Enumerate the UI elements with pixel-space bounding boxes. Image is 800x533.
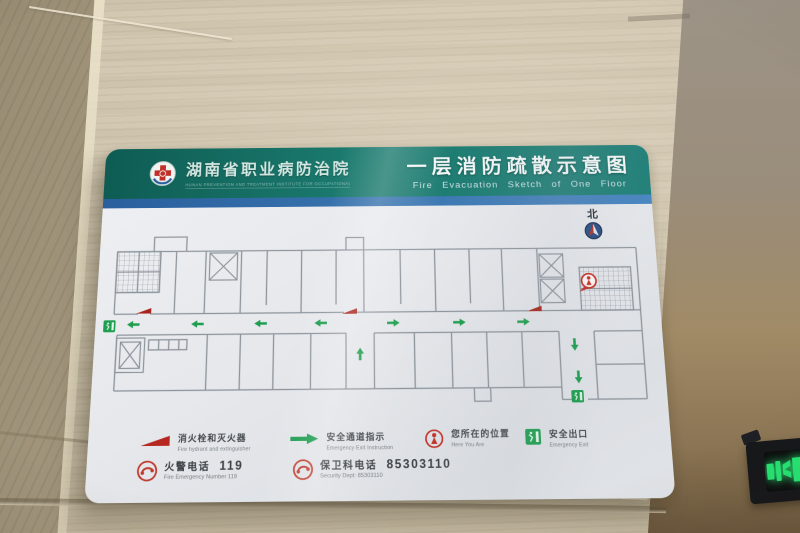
sign-scene: 湖南省职业病防治院 HUNAN PREVENTION AND TREATMENT…: [96, 138, 661, 494]
elevator-lower-left: [115, 338, 145, 373]
legend-item-exit: 安全出口 Emergency Exit: [525, 427, 589, 448]
route-arrow-icon: [290, 432, 319, 446]
phone-label-zh: 保卫科电话: [320, 457, 377, 472]
legend-label-en: Emergency Exit: [549, 442, 589, 449]
legend-label-zh: 您所在的位置: [451, 427, 510, 440]
elevator-mid: [209, 253, 237, 280]
elevators-right: [539, 254, 565, 303]
plan-walls: [109, 233, 647, 404]
legend-item-route: 安全通道指示 Emergency Exit Instruction: [290, 430, 393, 451]
hospital-logo-icon: [149, 161, 177, 187]
legend-item-here-you-are: 您所在的位置 Here You Are: [424, 427, 510, 449]
stairs-left: [115, 252, 161, 293]
north-indicator: 北: [584, 207, 603, 239]
legend-label-en: Emergency Exit Instruction: [326, 444, 393, 451]
plan-exit-left-icon: [103, 320, 116, 332]
org-name-zh: 湖南省职业病防治院: [186, 156, 351, 179]
evacuation-sign-board: 湖南省职业病防治院 HUNAN PREVENTION AND TREATMENT…: [84, 145, 675, 504]
emergency-exit-icon: [525, 429, 542, 446]
sign-body: 北 消火栓和灭火器 Fire hydrant and extinguisher: [84, 204, 675, 504]
legend-label-zh: 安全出口: [549, 427, 589, 440]
sign-title-en: Fire Evacuation Sketch of One Floor: [407, 179, 634, 191]
phone-label-en: Fire Emergency Number 119: [164, 474, 243, 481]
phone-number: 85303110: [387, 458, 452, 471]
sign-title-block: 一层消防疏散示意图 Fire Evacuation Sketch of One …: [406, 150, 633, 191]
plan-exit-bottom-icon: [571, 390, 584, 402]
org-name-block: 湖南省职业病防治院 HUNAN PREVENTION AND TREATMENT…: [185, 156, 351, 189]
telephone-icon: [136, 460, 159, 483]
floor-plan: 北: [89, 204, 669, 420]
legend-item-hydrant: 消火栓和灭火器 Fire hydrant and extinguisher: [139, 431, 251, 453]
north-label: 北: [587, 207, 599, 220]
fire-hydrant-icon: [139, 433, 171, 447]
org-name-en: HUNAN PREVENTION AND TREATMENT INSTITUTE…: [185, 181, 350, 189]
legend-label-en: Fire hydrant and extinguisher: [177, 446, 250, 453]
phone-label-en: Security Dept: 85303110: [320, 472, 452, 480]
route-arrows: [124, 317, 583, 387]
led-exit-glyph: [763, 449, 800, 492]
sign-header: 湖南省职业病防治院 HUNAN PREVENTION AND TREATMENT…: [103, 145, 651, 199]
here-you-are-icon: [424, 429, 444, 449]
sign-title-zh: 一层消防疏散示意图: [406, 150, 632, 179]
led-exit-sign: [745, 438, 800, 505]
legend-label-en: Here You Are: [451, 441, 510, 448]
phone-label-zh: 火警电话: [164, 458, 210, 473]
telephone-icon: [292, 458, 314, 481]
legend-label-zh: 消火栓和灭火器: [178, 431, 251, 444]
legend-phone-fire: 火警电话 119 Fire Emergency Number 119: [136, 458, 244, 483]
legend-label-zh: 安全通道指示: [326, 430, 393, 443]
legend-phone-security: 保卫科电话 85303110 Security Dept: 85303110: [292, 456, 452, 481]
phone-number: 119: [219, 460, 243, 473]
